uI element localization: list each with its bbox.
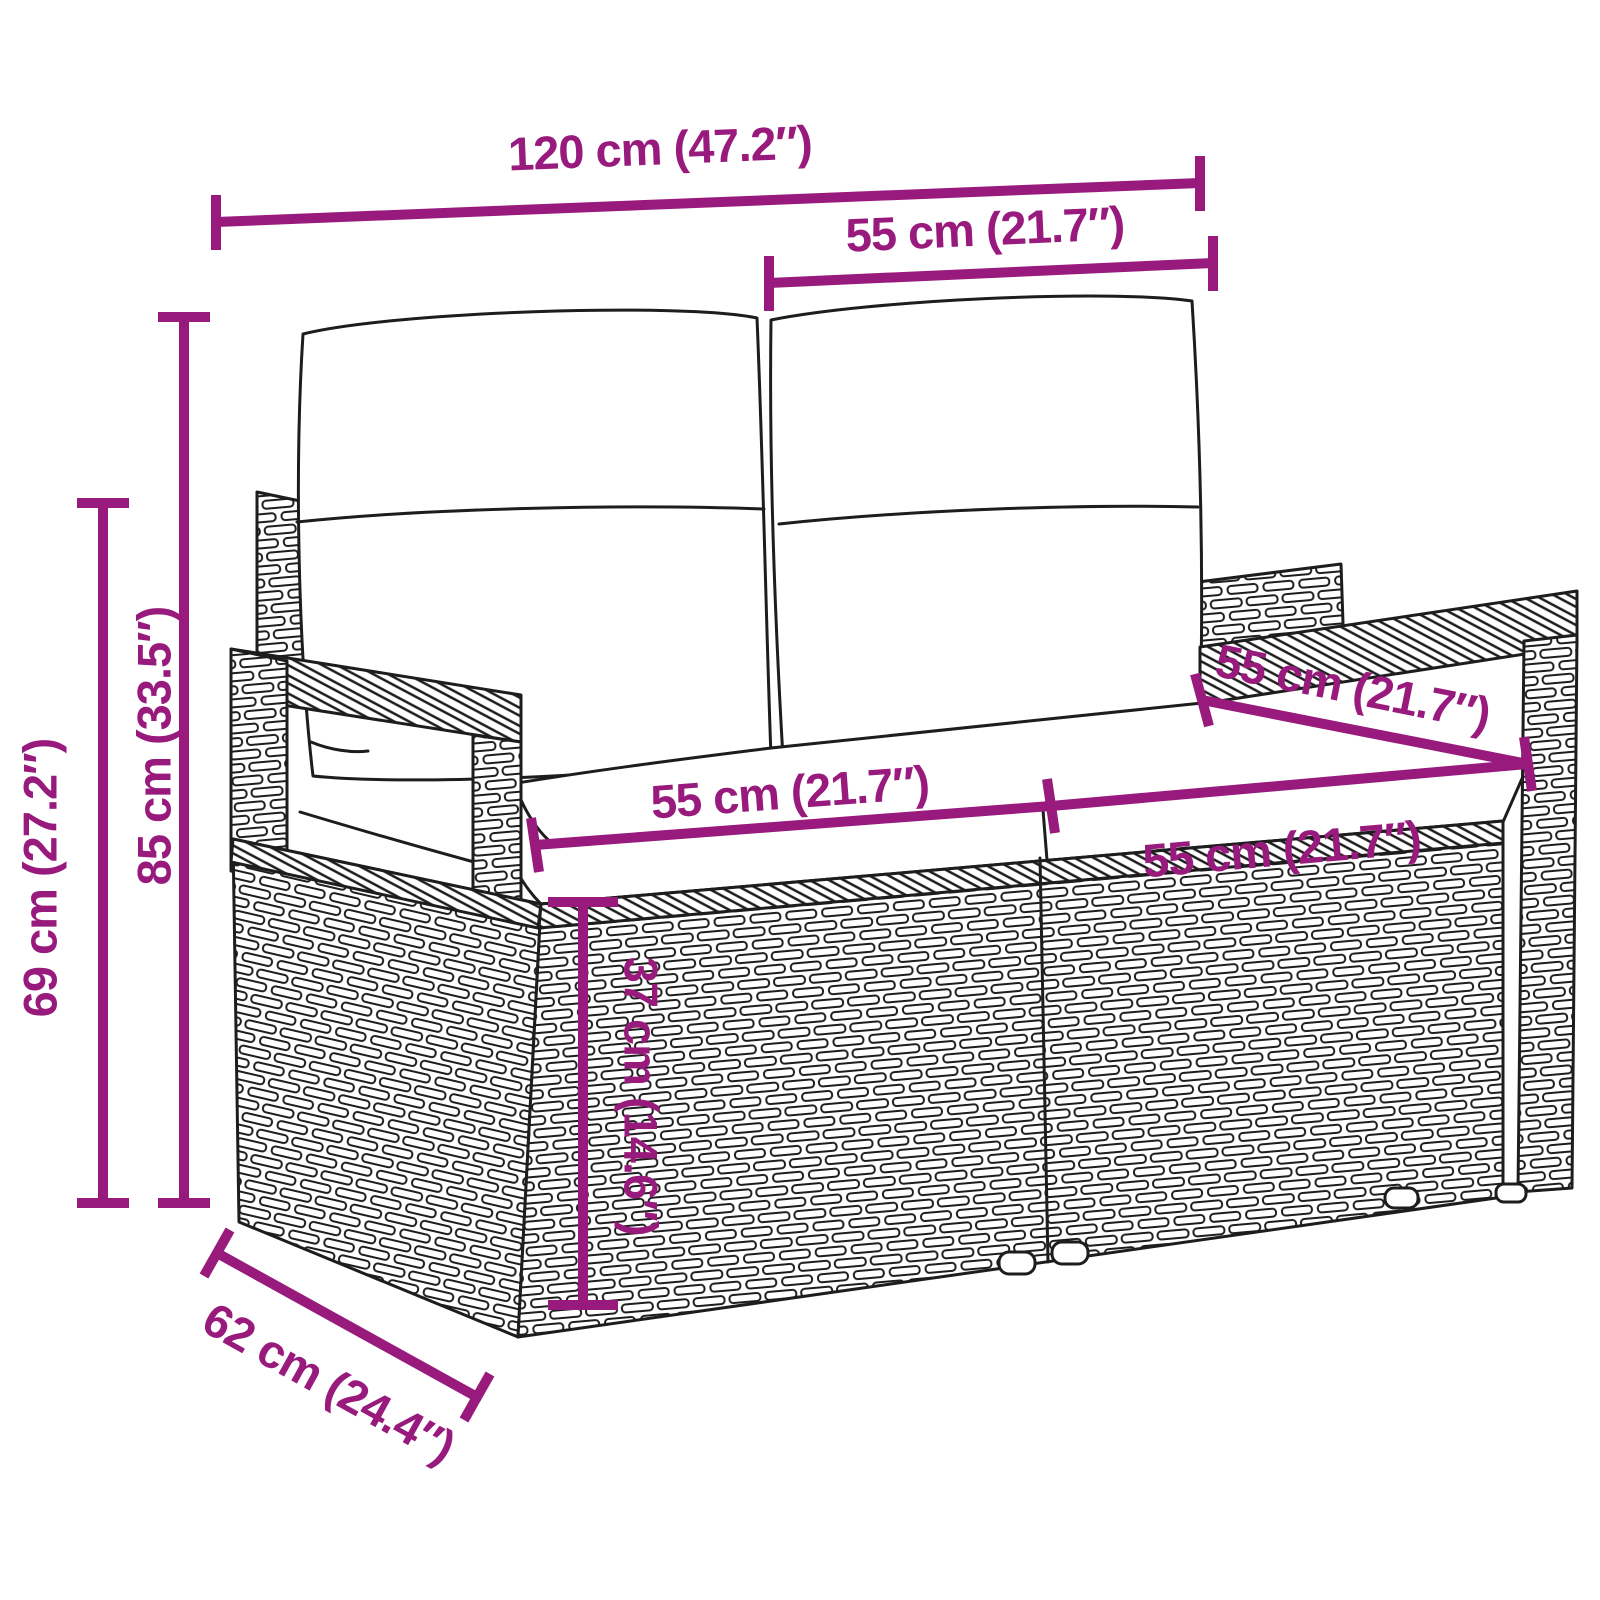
label-seat-height: 37 cm (14.6″): [615, 957, 668, 1236]
diagram-svg: 120 cm (47.2″) 55 cm (21.7″) 85 cm (33.5…: [0, 0, 1600, 1600]
back-cushion-right: [771, 296, 1202, 765]
dimension-diagram: 120 cm (47.2″) 55 cm (21.7″) 85 cm (33.5…: [0, 0, 1600, 1600]
foot-front-middle: [1052, 1242, 1088, 1264]
seat-edge-through-armrest: [300, 812, 474, 862]
foot-back-middle: [999, 1252, 1035, 1274]
label-arm-height: 69 cm (27.2″): [13, 739, 66, 1018]
dim-arm-height: [77, 503, 129, 1203]
label-overall-width: 120 cm (47.2″): [507, 115, 813, 180]
foot-front-right: [1385, 1188, 1418, 1208]
right-panel-front-column: [1518, 635, 1577, 1192]
armrest-right-post: [473, 735, 521, 913]
label-total-height: 85 cm (33.5″): [127, 607, 180, 886]
foot-panel-right: [1496, 1184, 1526, 1202]
label-back-section-width: 55 cm (21.7″): [844, 196, 1125, 262]
